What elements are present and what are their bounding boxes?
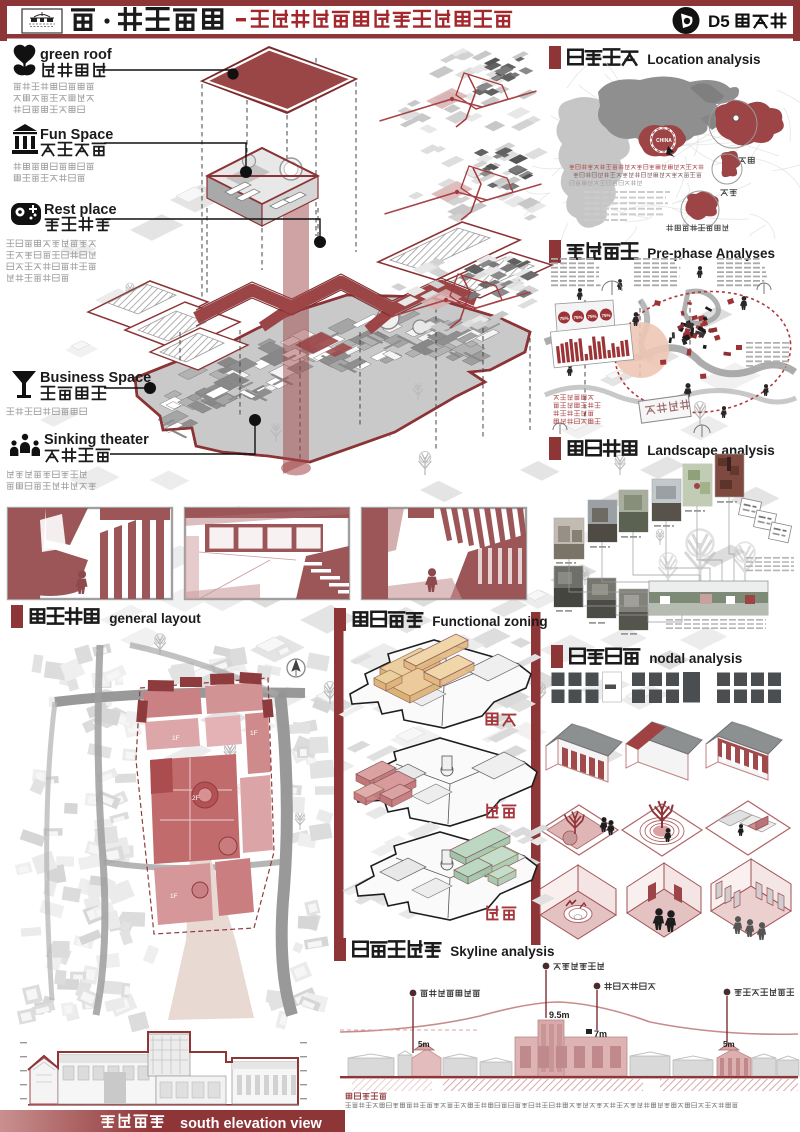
svg-text:south elevation view: south elevation view <box>180 1116 323 1132</box>
svg-text:Functional zoning: Functional zoning <box>432 614 547 629</box>
svg-text:2F: 2F <box>192 795 200 802</box>
svg-text:1F: 1F <box>250 730 258 737</box>
svg-text:Sinking theater: Sinking theater <box>44 432 149 448</box>
svg-text:75%: 75% <box>587 314 596 320</box>
svg-text:1F: 1F <box>172 735 180 742</box>
svg-text:Landscape analysis: Landscape analysis <box>647 443 775 458</box>
svg-text:9.5m: 9.5m <box>549 1010 570 1020</box>
svg-text:75%: 75% <box>559 316 568 322</box>
svg-text:5m: 5m <box>418 1040 430 1049</box>
svg-text:Rest place: Rest place <box>44 202 117 218</box>
svg-text:green roof: green roof <box>40 47 112 63</box>
svg-text:75%: 75% <box>573 315 582 321</box>
svg-text:Skyline analysis: Skyline analysis <box>450 944 554 959</box>
svg-text:Business Space: Business Space <box>40 370 151 386</box>
svg-text:Location analysis: Location analysis <box>647 52 760 67</box>
svg-text:nodal analysis: nodal analysis <box>649 651 742 666</box>
svg-text:CHINA: CHINA <box>656 138 672 144</box>
svg-text:general layout: general layout <box>109 611 201 626</box>
svg-text:D5: D5 <box>708 12 730 31</box>
svg-text:5m: 5m <box>723 1040 735 1049</box>
svg-text:1F: 1F <box>170 893 178 900</box>
svg-text:Fun Space: Fun Space <box>40 127 113 143</box>
svg-text:7m: 7m <box>594 1029 607 1039</box>
svg-text:75%: 75% <box>601 313 610 319</box>
